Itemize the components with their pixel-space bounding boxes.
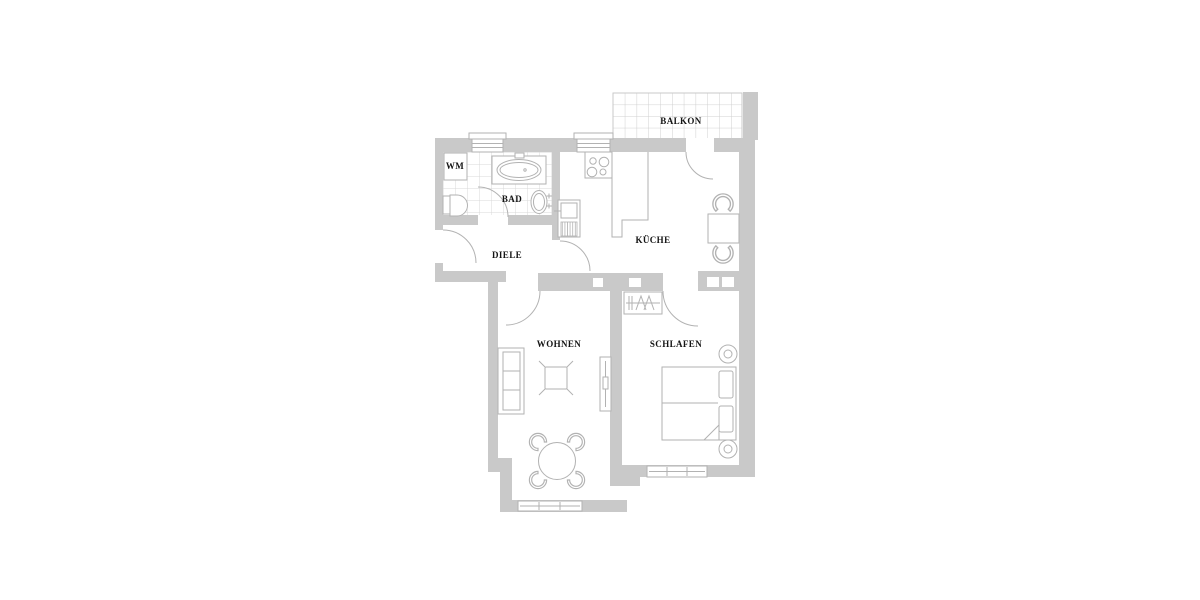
living-room <box>498 291 611 492</box>
wall-shaft-icon <box>722 277 734 287</box>
bathtub-icon <box>492 153 546 184</box>
kitchen <box>554 152 739 271</box>
window-icon <box>469 133 506 152</box>
balcony-door-swing-icon <box>686 152 713 179</box>
entry-door-swing-icon <box>443 230 476 263</box>
chair-icon <box>713 246 733 263</box>
coffee-table-icon <box>539 361 573 395</box>
floor-plan-page: BALKON WM BAD DIELE KÜCHE WOHNEN SCHLAFE… <box>0 0 1200 600</box>
wall-wohnen-schlafen <box>610 291 622 486</box>
window-icon <box>574 133 613 152</box>
sofa-icon <box>498 348 524 414</box>
wall-shaft-icon <box>707 277 719 287</box>
wall-wohnen-left <box>488 282 498 462</box>
room-label-wm: WM <box>446 161 464 171</box>
double-bed-icon <box>662 367 736 440</box>
room-label-diele: DIELE <box>492 250 522 260</box>
kitchen-table-icon <box>708 214 739 243</box>
kitchen-sink-icon <box>554 200 580 237</box>
entry-door-opening <box>434 230 444 263</box>
kitchen-door-swing-icon <box>560 241 590 271</box>
window-radiator-icon <box>647 466 707 477</box>
bedroom <box>624 291 737 458</box>
room-label-balkon: BALKON <box>660 116 702 126</box>
window-radiator-icon <box>518 501 582 511</box>
room-label-wohnen: WOHNEN <box>537 339 582 349</box>
hall <box>443 230 476 263</box>
living-door-swing-icon <box>506 291 540 325</box>
radiator-icon <box>600 357 611 411</box>
wall-bay-left <box>500 472 512 502</box>
wardrobe-icon <box>624 292 662 314</box>
wall-balcony-right <box>743 92 758 140</box>
room-label-kueche: KÜCHE <box>635 235 670 245</box>
stove-icon <box>585 152 612 178</box>
wall-shaft-icon <box>629 278 641 287</box>
balcony-door-opening <box>686 138 714 152</box>
nightstand-icon <box>719 345 737 363</box>
dining-table-icon <box>539 443 576 480</box>
chair-icon <box>713 194 733 211</box>
wall-right <box>739 152 755 477</box>
nightstand-icon <box>719 440 737 458</box>
floor-plan: BALKON WM BAD DIELE KÜCHE WOHNEN SCHLAFE… <box>0 0 1200 600</box>
toilet-icon <box>443 195 468 216</box>
room-label-schlafen: SCHLAFEN <box>650 339 702 349</box>
wall-shaft-icon <box>593 278 603 287</box>
wall-diele-bottom <box>435 271 506 282</box>
bedroom-door-swing-icon <box>663 291 698 326</box>
wall-bay-step-left <box>488 458 512 472</box>
wall-bad-bottom-right <box>508 215 552 225</box>
room-label-bad: BAD <box>502 194 522 204</box>
kitchen-counter-icon <box>612 152 648 237</box>
